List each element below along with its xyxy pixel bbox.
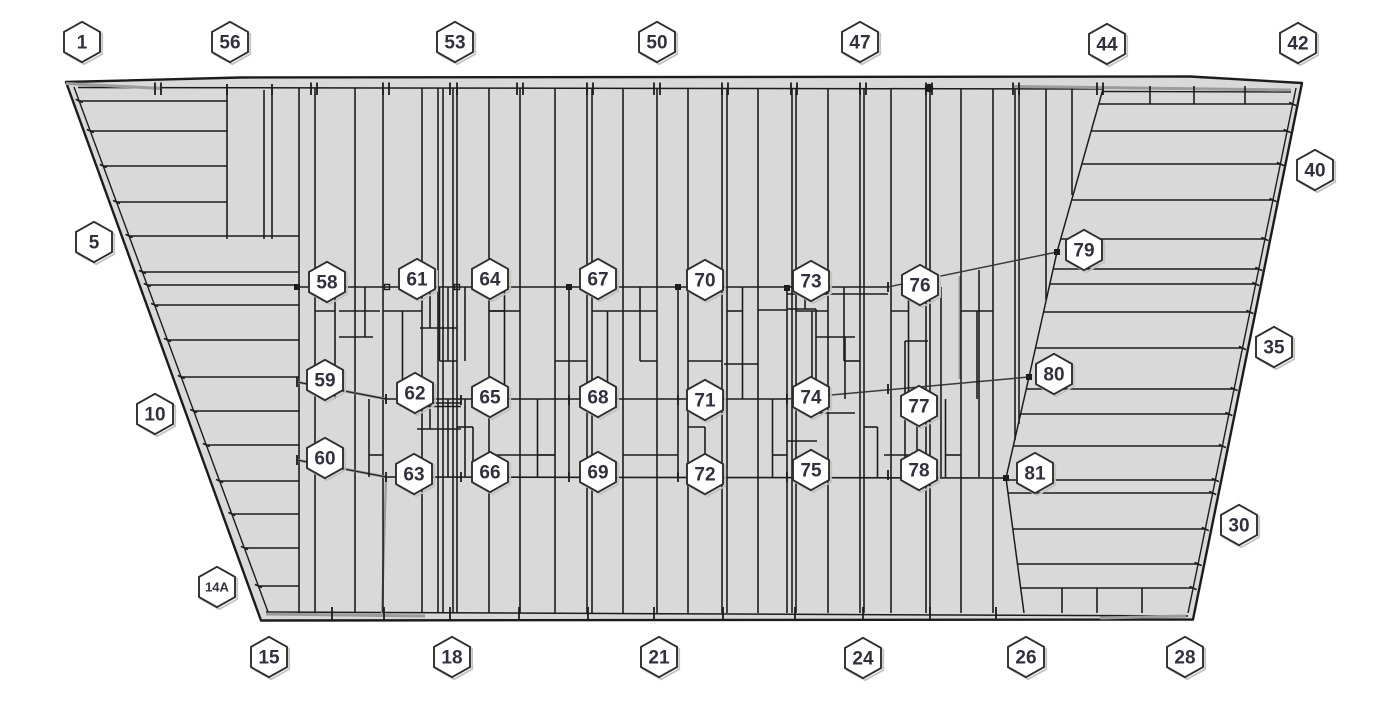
svg-text:47: 47	[849, 33, 870, 54]
svg-text:64: 64	[479, 270, 501, 291]
svg-text:71: 71	[694, 391, 716, 412]
svg-text:24: 24	[852, 649, 874, 670]
svg-text:79: 79	[1073, 241, 1094, 262]
svg-text:76: 76	[909, 276, 930, 297]
svg-text:5: 5	[89, 233, 100, 254]
svg-text:68: 68	[587, 388, 608, 409]
svg-text:56: 56	[219, 33, 240, 54]
svg-text:42: 42	[1287, 34, 1308, 55]
svg-text:28: 28	[1174, 648, 1195, 669]
svg-text:72: 72	[694, 465, 715, 486]
svg-text:1: 1	[77, 33, 88, 54]
svg-text:62: 62	[404, 384, 425, 405]
svg-text:15: 15	[258, 648, 280, 669]
svg-text:40: 40	[1304, 161, 1325, 182]
svg-text:69: 69	[587, 463, 608, 484]
svg-text:66: 66	[479, 463, 500, 484]
svg-text:59: 59	[314, 371, 335, 392]
svg-text:26: 26	[1015, 648, 1036, 669]
svg-text:53: 53	[444, 33, 465, 54]
svg-text:58: 58	[316, 273, 337, 294]
svg-text:61: 61	[406, 270, 428, 291]
svg-text:30: 30	[1228, 516, 1249, 537]
svg-text:63: 63	[403, 465, 424, 486]
svg-text:78: 78	[908, 461, 929, 482]
svg-text:18: 18	[441, 648, 462, 669]
svg-text:65: 65	[479, 388, 501, 409]
svg-text:44: 44	[1096, 35, 1118, 56]
svg-text:50: 50	[646, 33, 667, 54]
svg-text:77: 77	[908, 397, 929, 418]
svg-text:35: 35	[1263, 338, 1285, 359]
svg-text:81: 81	[1024, 464, 1046, 485]
svg-text:75: 75	[800, 461, 822, 482]
svg-text:73: 73	[800, 272, 821, 293]
svg-text:10: 10	[144, 405, 165, 426]
svg-text:60: 60	[314, 449, 335, 470]
svg-text:21: 21	[648, 648, 670, 669]
svg-text:70: 70	[694, 271, 715, 292]
svg-text:80: 80	[1043, 365, 1064, 386]
svg-text:14A: 14A	[205, 580, 229, 595]
svg-text:74: 74	[800, 388, 822, 409]
svg-text:67: 67	[587, 270, 608, 291]
